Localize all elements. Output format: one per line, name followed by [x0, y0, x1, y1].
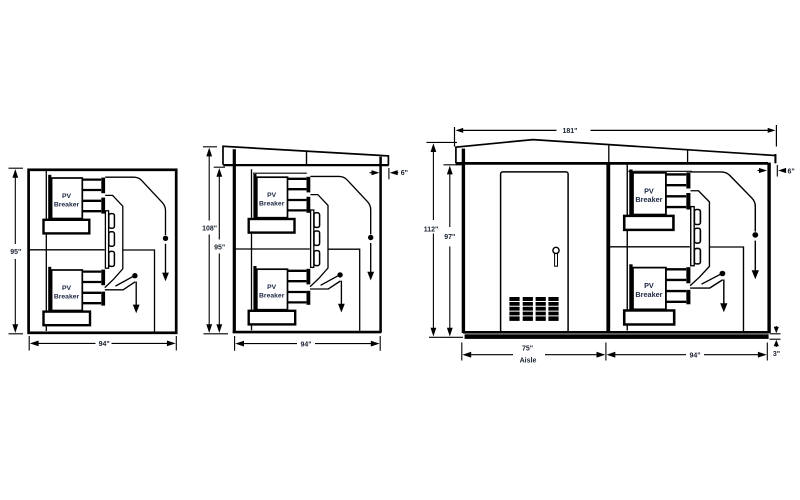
svg-text:3": 3": [773, 351, 780, 358]
svg-text:Aisle: Aisle: [520, 357, 537, 364]
svg-text:95": 95": [214, 244, 225, 251]
svg-text:94": 94": [689, 353, 700, 360]
svg-text:6": 6": [788, 168, 795, 175]
svg-text:95": 95": [10, 249, 21, 256]
svg-text:112": 112": [424, 226, 439, 233]
svg-text:6": 6": [401, 170, 408, 177]
svg-text:97": 97": [444, 234, 455, 241]
svg-text:94": 94": [300, 341, 311, 348]
svg-text:181": 181": [563, 128, 578, 135]
svg-text:108": 108": [202, 225, 217, 232]
svg-text:75": 75": [522, 346, 533, 353]
svg-text:94": 94": [99, 341, 110, 348]
